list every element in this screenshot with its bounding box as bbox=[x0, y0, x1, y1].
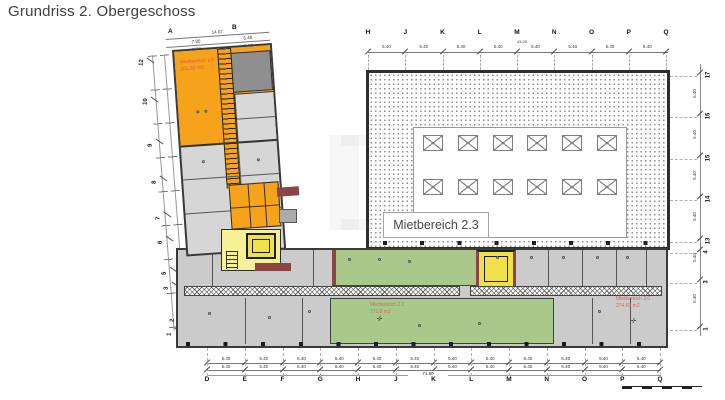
marker-dot bbox=[202, 160, 205, 163]
marker-dot bbox=[257, 158, 260, 161]
stairs-icon bbox=[226, 251, 238, 269]
dim-label: 5.40 bbox=[513, 356, 543, 361]
dim-label: 5.40 bbox=[475, 364, 505, 369]
grid-dashed-line bbox=[670, 242, 697, 243]
grid-number: 14 bbox=[705, 196, 711, 203]
dim-tick bbox=[663, 48, 669, 54]
stairwell-west bbox=[246, 233, 276, 259]
bottom-total-dim: 71.80 bbox=[408, 371, 448, 376]
dim-label: 5.40 bbox=[626, 364, 656, 369]
grid-number: 10 bbox=[143, 95, 150, 105]
hall-mietbereich-2-3: Mietbereich 2.3 bbox=[366, 70, 670, 250]
area-name: Mietbereich 2.3 bbox=[393, 218, 478, 232]
skylight-icon bbox=[597, 179, 617, 195]
dim-label: 5.40 bbox=[211, 364, 241, 369]
red-wall bbox=[277, 186, 300, 197]
grid-number: 8 bbox=[152, 174, 159, 184]
wall-line bbox=[592, 298, 593, 344]
dim-label: 5.40 bbox=[551, 356, 581, 361]
marker-dot bbox=[268, 316, 271, 319]
dim-label: 5.40 bbox=[692, 212, 697, 221]
marker-dot bbox=[626, 256, 629, 259]
grid-dashed-line bbox=[629, 55, 630, 70]
scale-bar bbox=[622, 386, 702, 389]
marker-dot bbox=[562, 256, 565, 259]
grid-letter: M bbox=[503, 376, 515, 383]
grid-dashed-line bbox=[670, 283, 697, 284]
grid-letter: H bbox=[362, 29, 374, 36]
marker-dot bbox=[598, 310, 601, 313]
wall-line bbox=[313, 250, 314, 286]
shaft-room bbox=[279, 209, 297, 223]
grid-letter: H bbox=[352, 376, 364, 383]
top-total-dim: 43.20 bbox=[492, 39, 552, 44]
skylight-icon bbox=[527, 135, 547, 151]
dim-label: 5.40 bbox=[400, 364, 430, 369]
stair-core bbox=[484, 256, 508, 282]
red-wall bbox=[255, 263, 291, 271]
grid-letter: J bbox=[390, 376, 402, 383]
grid-letter: Q bbox=[660, 29, 672, 36]
grid-dashed-line bbox=[554, 55, 555, 70]
dim-label: 5.40 bbox=[475, 356, 505, 361]
dim-label: 5.40 bbox=[589, 356, 619, 361]
area-size: 274.69 m2 bbox=[616, 303, 650, 310]
dim-label: 5.40 bbox=[692, 89, 697, 98]
dim-label: 5.40 bbox=[692, 294, 697, 303]
wall-line bbox=[231, 204, 279, 208]
dim-label: 5.40 bbox=[592, 44, 629, 49]
dim-label: 5.40 bbox=[287, 364, 317, 369]
area-label-2-3: Mietbereich 2.3 bbox=[383, 212, 489, 238]
grid-number: 5 bbox=[162, 265, 169, 275]
area-name: Mietbereich 3.0 bbox=[616, 296, 650, 303]
grid-number: 6 bbox=[158, 234, 165, 244]
column-row bbox=[383, 241, 661, 245]
grid-dashed-line bbox=[517, 55, 518, 70]
grid-number: 9 bbox=[148, 137, 155, 147]
dark-room bbox=[230, 50, 273, 93]
area-label-2-2: Mietbereich 2.2 771.8 m2 bbox=[370, 302, 404, 315]
dim-label: 5.40 bbox=[400, 356, 430, 361]
marker-dot bbox=[378, 258, 381, 261]
grid-letter: O bbox=[586, 29, 598, 36]
grid-letter: D bbox=[201, 376, 213, 383]
dim-label: 5.40 bbox=[554, 44, 591, 49]
dim-label: 5.40 bbox=[589, 364, 619, 369]
skylight-icon bbox=[527, 179, 547, 195]
dim-label: 5.40 bbox=[692, 171, 697, 180]
skylight-icon bbox=[458, 179, 478, 195]
grid-number: 17 bbox=[705, 72, 711, 79]
wall-line bbox=[646, 250, 647, 286]
dim-label: 5.40 bbox=[443, 44, 480, 49]
area-2-2-room bbox=[330, 298, 554, 344]
skylight-icon bbox=[493, 135, 513, 151]
grid-number: 1 bbox=[704, 327, 710, 330]
skylight-icon bbox=[597, 135, 617, 151]
grid-letter: N bbox=[548, 29, 560, 36]
grid-dashed-line bbox=[480, 55, 481, 70]
grid-letter: E bbox=[239, 376, 251, 383]
grid-dashed-line bbox=[670, 159, 697, 160]
corridor-hatch bbox=[184, 286, 460, 296]
grid-letter: L bbox=[474, 29, 486, 36]
corridor-hatch bbox=[470, 286, 662, 296]
wall-line bbox=[548, 250, 549, 286]
grid-number: 15 bbox=[705, 155, 711, 162]
skylight-icon bbox=[458, 135, 478, 151]
dim-label: 5.40 bbox=[626, 356, 656, 361]
marker-dot bbox=[418, 324, 421, 327]
dim-label: 5.40 bbox=[405, 44, 442, 49]
grid-dashed-line bbox=[405, 55, 406, 70]
wc-block bbox=[228, 181, 281, 229]
grid-dashed-line bbox=[670, 200, 697, 201]
top-dimension-line bbox=[368, 52, 668, 53]
marker-dot bbox=[208, 312, 211, 315]
skylight-row bbox=[423, 179, 617, 195]
grid-dashed-line bbox=[670, 330, 697, 331]
dim-label: 5.40 bbox=[324, 364, 354, 369]
grid-dashed-line bbox=[666, 55, 667, 70]
dim-label: 5.40 bbox=[692, 130, 697, 139]
wall-line bbox=[237, 116, 275, 120]
page-title: Grundriss 2. Obergeschoss bbox=[8, 3, 196, 20]
skylight-icon bbox=[562, 135, 582, 151]
dim-label: 5.40 bbox=[438, 356, 468, 361]
dim-label: 5.40 bbox=[629, 44, 666, 49]
grid-letter: G bbox=[314, 376, 326, 383]
grid-dashed-line bbox=[670, 117, 697, 118]
grid-letter: J bbox=[399, 29, 411, 36]
grid-number: 3 bbox=[704, 280, 710, 283]
side-rooms bbox=[234, 91, 276, 142]
dim-label: 5.40 bbox=[249, 356, 279, 361]
area-label-3-0: Mietbereich 3.0 274.69 m2 bbox=[616, 296, 650, 309]
dim-label: 5.40 bbox=[211, 356, 241, 361]
dim-label: 5.40 bbox=[551, 364, 581, 369]
dim-label: 5.40 bbox=[249, 364, 279, 369]
grid-letter: F bbox=[277, 376, 289, 383]
marker-dot bbox=[408, 260, 411, 263]
right-dimension-line bbox=[700, 64, 701, 336]
wall-line bbox=[212, 250, 213, 286]
dim-label: 5.40 bbox=[517, 44, 554, 49]
dim-label: 5.40 bbox=[438, 364, 468, 369]
floorplan-canvas: Grundriss 2. Obergeschoss H J K L M bbox=[0, 0, 725, 400]
marker-dot bbox=[496, 256, 499, 259]
grid-letter: L bbox=[465, 376, 477, 383]
dim-label: 5.40 bbox=[480, 44, 517, 49]
dim-label: 5.40 bbox=[513, 364, 543, 369]
wall-line bbox=[245, 298, 246, 344]
floor-marker-icon: ✛ bbox=[630, 318, 637, 325]
grid-letter: N bbox=[541, 376, 553, 383]
dim-label: 5.40 bbox=[368, 44, 405, 49]
grid-number: 13 bbox=[705, 238, 711, 245]
grid-dashed-line bbox=[670, 76, 697, 77]
dim-label: 5.40 bbox=[324, 356, 354, 361]
marker-dot bbox=[530, 256, 533, 259]
wall-line bbox=[616, 250, 617, 286]
dim-label: 5.40 bbox=[362, 356, 392, 361]
grid-number: 16 bbox=[705, 113, 711, 120]
marker-dot bbox=[308, 310, 311, 313]
marker-dot bbox=[348, 258, 351, 261]
skylight-icon bbox=[562, 179, 582, 195]
column-row bbox=[186, 342, 658, 346]
stair-core bbox=[252, 239, 270, 253]
grid-number: 12 bbox=[139, 56, 146, 66]
wall-line bbox=[582, 250, 583, 286]
grid-letter: P bbox=[623, 29, 635, 36]
floor-marker-icon: ✛ bbox=[376, 316, 383, 323]
grid-dashed-line bbox=[368, 55, 369, 70]
skylight-icon bbox=[493, 179, 513, 195]
marker-dot bbox=[596, 256, 599, 259]
grid-letter: O bbox=[579, 376, 591, 383]
grid-letter: Q bbox=[654, 376, 666, 383]
area-size: 771.8 m2 bbox=[370, 309, 404, 316]
grid-number: 3 bbox=[164, 280, 171, 290]
dim-label: 5.40 bbox=[287, 356, 317, 361]
dim-label: 5.40 bbox=[692, 253, 697, 262]
grid-letter: M bbox=[511, 29, 523, 36]
grid-letter: K bbox=[437, 29, 449, 36]
grid-dashed-line bbox=[592, 55, 593, 70]
green-area-upper bbox=[332, 250, 478, 286]
skylight-icon bbox=[423, 179, 443, 195]
skylight-icon bbox=[423, 135, 443, 151]
skylight-row bbox=[423, 135, 617, 151]
grid-number: 7 bbox=[156, 210, 163, 220]
grid-letter: K bbox=[428, 376, 440, 383]
dim-label: 5.40 bbox=[362, 364, 392, 369]
grid-number: 4 bbox=[704, 250, 710, 253]
wall-line bbox=[302, 298, 303, 344]
area-name: Mietbereich 2.2 bbox=[370, 302, 404, 309]
grid-number: 1 bbox=[167, 326, 174, 336]
marker-dot bbox=[478, 322, 481, 325]
grid-letter: P bbox=[616, 376, 628, 383]
area-label-1-0: Mietbereich 1.0 201.83 m2 bbox=[180, 57, 215, 72]
grid-dashed-line bbox=[443, 55, 444, 70]
